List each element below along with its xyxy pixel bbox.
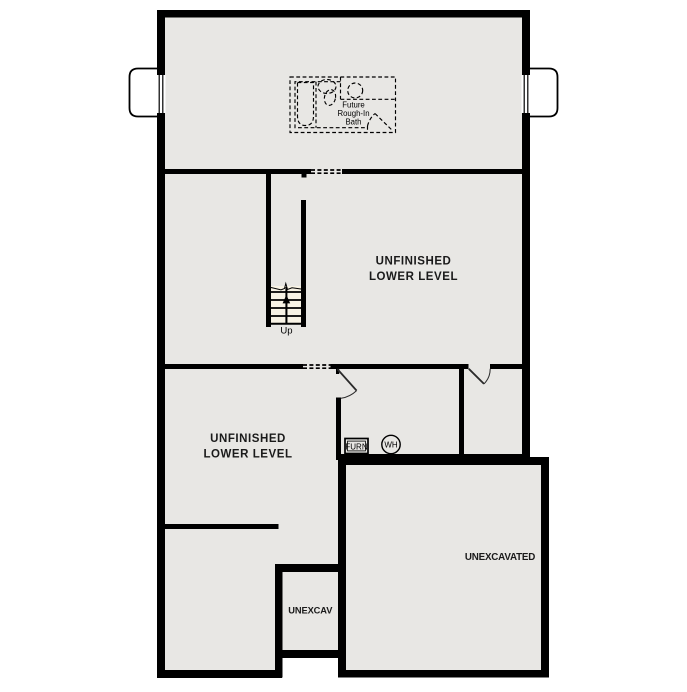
svg-text:Up: Up <box>280 326 292 337</box>
svg-text:Bath: Bath <box>345 118 361 127</box>
svg-text:LOWER LEVEL: LOWER LEVEL <box>203 449 292 461</box>
svg-text:LOWER LEVEL: LOWER LEVEL <box>369 271 458 283</box>
svg-text:FURN: FURN <box>345 442 367 451</box>
svg-text:UNEXCAVATED: UNEXCAVATED <box>465 552 535 563</box>
svg-text:UNEXCAV: UNEXCAV <box>288 605 333 615</box>
svg-text:WH: WH <box>384 441 398 450</box>
svg-text:UNFINISHED: UNFINISHED <box>376 256 452 268</box>
svg-text:UNFINISHED: UNFINISHED <box>210 433 286 445</box>
